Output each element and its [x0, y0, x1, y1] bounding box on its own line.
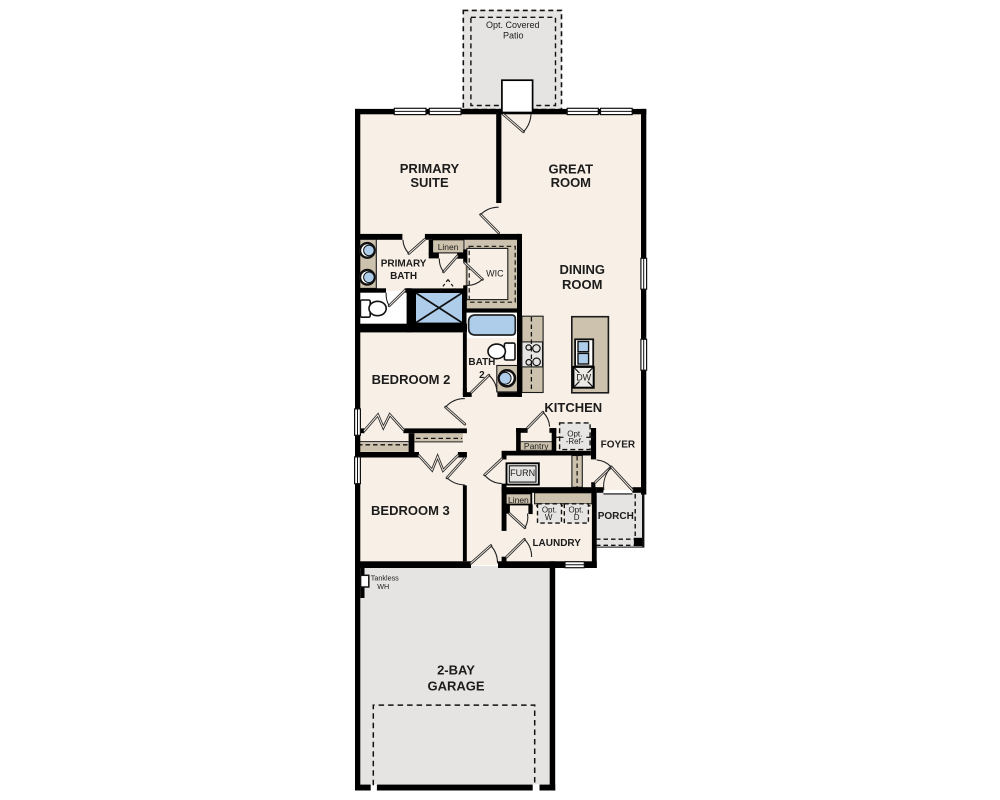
- svg-text:BEDROOM 2: BEDROOM 2: [372, 372, 451, 387]
- svg-text:-Ref-: -Ref-: [566, 437, 584, 446]
- svg-text:2-BAY: 2-BAY: [437, 663, 475, 678]
- svg-text:2: 2: [479, 370, 485, 381]
- svg-text:BATH: BATH: [468, 357, 495, 368]
- svg-text:WIC: WIC: [486, 268, 504, 278]
- svg-text:BATH: BATH: [390, 271, 417, 282]
- svg-text:SUITE: SUITE: [410, 175, 449, 190]
- svg-text:PRIMARY: PRIMARY: [381, 259, 427, 270]
- svg-text:FURN: FURN: [510, 468, 535, 478]
- svg-text:KITCHEN: KITCHEN: [544, 400, 602, 415]
- svg-text:GARAGE: GARAGE: [427, 679, 484, 694]
- svg-text:WH: WH: [377, 582, 389, 591]
- svg-text:ROOM: ROOM: [551, 175, 591, 190]
- svg-text:Pantry: Pantry: [524, 441, 549, 451]
- svg-text:Linen: Linen: [438, 242, 459, 252]
- svg-text:Patio: Patio: [503, 31, 524, 41]
- svg-text:PRIMARY: PRIMARY: [400, 161, 460, 176]
- svg-text:GREAT: GREAT: [549, 161, 594, 176]
- svg-text:FOYER: FOYER: [601, 439, 636, 450]
- svg-text:Opt. Covered: Opt. Covered: [486, 20, 540, 30]
- svg-text:DW: DW: [576, 373, 591, 383]
- svg-text:Tankless: Tankless: [371, 573, 399, 582]
- svg-text:ROOM: ROOM: [562, 277, 602, 292]
- svg-text:D: D: [574, 513, 580, 522]
- svg-text:W: W: [545, 513, 553, 522]
- svg-text:PORCH: PORCH: [598, 511, 634, 522]
- svg-text:DINING: DINING: [559, 262, 605, 277]
- svg-text:BEDROOM 3: BEDROOM 3: [371, 503, 450, 518]
- svg-text:LAUNDRY: LAUNDRY: [532, 538, 581, 549]
- svg-text:Linen: Linen: [508, 495, 529, 505]
